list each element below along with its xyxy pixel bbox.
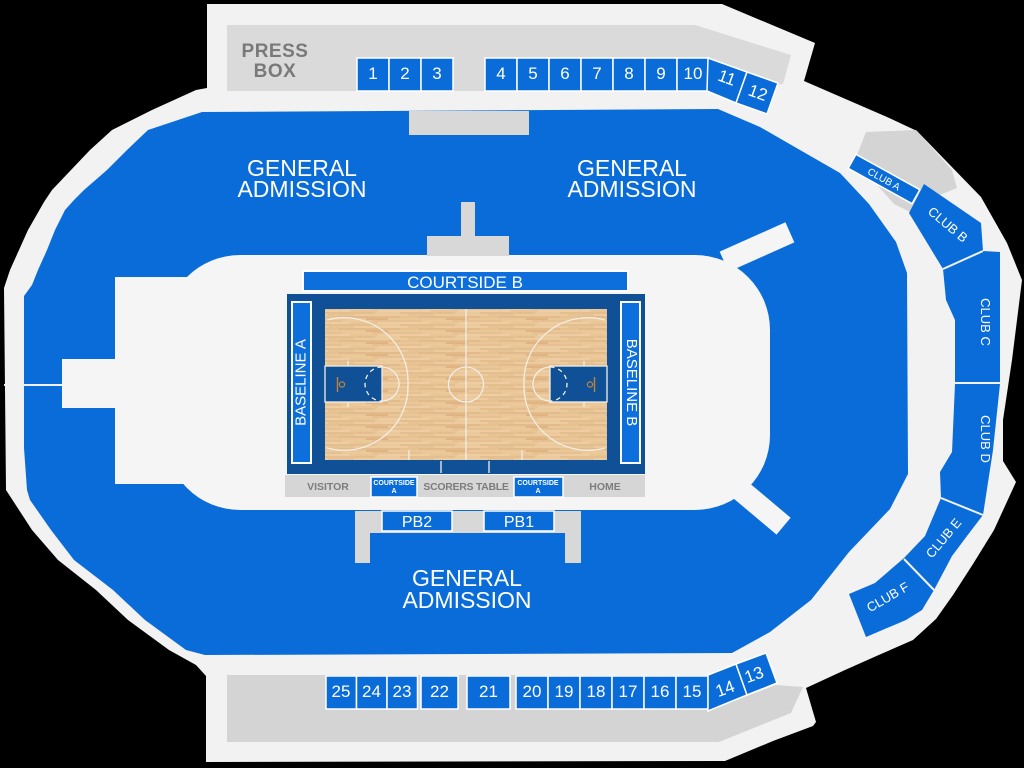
svg-text:COURTSIDE: COURTSIDE <box>373 480 415 487</box>
svg-text:A: A <box>535 488 540 495</box>
svg-text:6: 6 <box>560 64 569 83</box>
svg-text:2: 2 <box>400 64 409 83</box>
svg-text:A: A <box>391 488 396 495</box>
svg-text:VISITOR: VISITOR <box>307 481 349 493</box>
svg-text:PB1: PB1 <box>504 514 534 531</box>
svg-text:18: 18 <box>587 682 606 701</box>
svg-text:4: 4 <box>496 64 505 83</box>
svg-text:CLUB C: CLUB C <box>978 298 993 346</box>
svg-text:COURTSIDE B: COURTSIDE B <box>407 273 523 292</box>
svg-text:PB2: PB2 <box>402 514 432 531</box>
svg-text:3: 3 <box>432 64 441 83</box>
svg-text:20: 20 <box>523 682 542 701</box>
svg-text:24: 24 <box>362 682 381 701</box>
svg-text:ADMISSION: ADMISSION <box>402 587 531 613</box>
svg-text:9: 9 <box>656 64 665 83</box>
svg-text:SCORERS TABLE: SCORERS TABLE <box>423 481 508 493</box>
svg-text:COURTSIDE: COURTSIDE <box>517 480 559 487</box>
svg-text:HOME: HOME <box>589 481 621 493</box>
svg-text:ADMISSION: ADMISSION <box>567 176 696 202</box>
svg-text:22: 22 <box>430 682 449 701</box>
svg-text:15: 15 <box>683 682 702 701</box>
svg-text:8: 8 <box>624 64 633 83</box>
svg-text:BASELINE B: BASELINE B <box>623 339 640 427</box>
svg-text:ADMISSION: ADMISSION <box>237 176 366 202</box>
svg-text:25: 25 <box>332 682 351 701</box>
svg-text:17: 17 <box>619 682 638 701</box>
svg-text:5: 5 <box>528 64 537 83</box>
svg-text:7: 7 <box>592 64 601 83</box>
svg-text:10: 10 <box>684 64 703 83</box>
svg-text:16: 16 <box>651 682 670 701</box>
svg-text:23: 23 <box>393 682 412 701</box>
svg-text:21: 21 <box>479 682 498 701</box>
svg-text:CLUB D: CLUB D <box>978 415 993 463</box>
svg-text:1: 1 <box>368 64 377 83</box>
svg-text:BASELINE A: BASELINE A <box>293 339 310 426</box>
svg-text:PRESS: PRESS <box>242 41 309 62</box>
svg-text:19: 19 <box>555 682 574 701</box>
svg-text:BOX: BOX <box>254 61 297 82</box>
